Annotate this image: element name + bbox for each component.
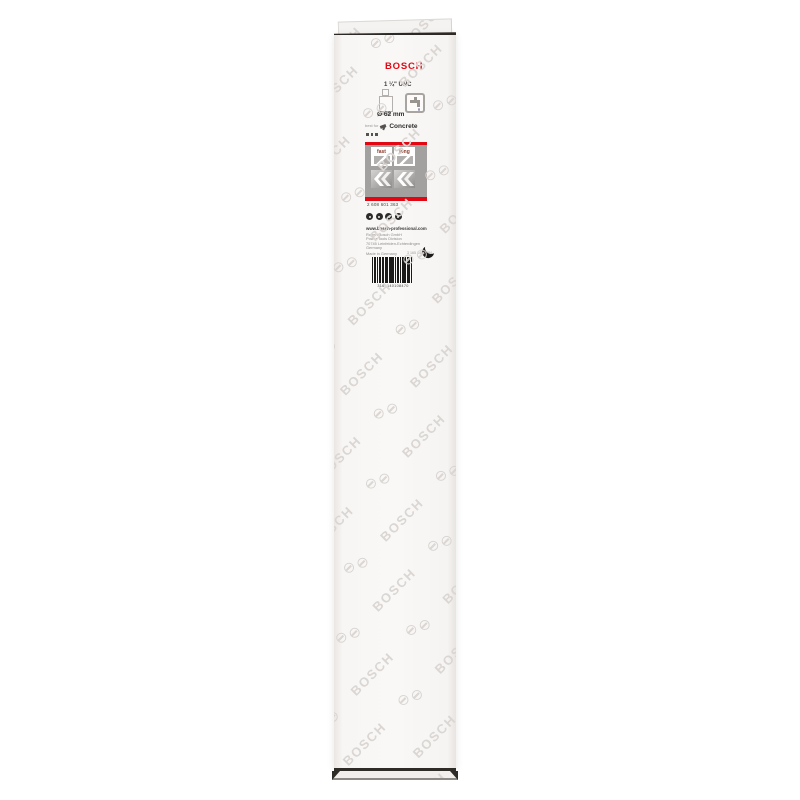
watermark-bosch-text: BOSCH	[399, 410, 448, 459]
watermark-bosch-text: BOSCH	[334, 502, 356, 551]
watermark-bosch-text: BOSCH	[431, 626, 456, 675]
watermark-bosch-text: BOSCH	[347, 648, 396, 697]
watermark-bosch-text: BOSCH	[339, 718, 388, 767]
bosch-armature-logo-watermark	[334, 705, 340, 733]
watermark-row: BOSCHBOSCHBOSCHBOSCH	[332, 771, 458, 780]
bosch-armature-logo-watermark	[401, 243, 429, 271]
watermark-bosch-text: BOSCH	[332, 776, 379, 780]
bosch-armature-logo-watermark	[334, 251, 359, 279]
watermark-bosch-text: BOSCH	[377, 494, 426, 543]
bosch-armature-logo-watermark	[342, 551, 370, 579]
bosch-armature-logo-watermark	[334, 335, 337, 363]
product-photo: BOSCHBOSCHBOSCHBOSCHBOSCHBOSCHBOSCHBOSCH…	[0, 0, 800, 800]
bosch-armature-logo-watermark	[334, 621, 362, 649]
bosch-armature-logo-watermark	[369, 35, 397, 54]
watermark-bosch-text: BOSCH	[334, 432, 364, 481]
watermark-bosch-text: BOSCH	[334, 62, 361, 111]
watermark-bosch-text: BOSCH	[344, 278, 393, 327]
bosch-core-bit-box: BOSCHBOSCHBOSCHBOSCHBOSCHBOSCHBOSCHBOSCH…	[330, 18, 458, 782]
watermark-bosch-text: BOSCH	[407, 340, 456, 389]
watermark-bosch-text: BOSCH	[334, 132, 353, 181]
box-front-face: BOSCH 1 ¼" UNC Ø 62 mm best for Concrete	[334, 35, 456, 770]
bosch-armature-logo-watermark	[434, 459, 456, 487]
bosch-armature-logo-watermark	[371, 397, 399, 425]
watermark-bosch-text: BOSCH	[409, 711, 456, 760]
box-bottom-flap: BOSCHBOSCHBOSCHBOSCHBOSCHBOSCHBOSCHBOSCH…	[332, 771, 458, 780]
watermark-bosch-text: BOSCH	[336, 348, 385, 397]
watermark-bosch-text: BOSCH	[366, 194, 415, 243]
watermark-bosch-text: BOSCH	[374, 124, 423, 173]
watermark-bosch-text: BOSCH	[439, 556, 456, 605]
watermark-bosch-text: BOSCH	[369, 564, 418, 613]
watermark-bosch-text: BOSCH	[436, 186, 456, 235]
watermark-bosch-text: BOSCH	[428, 256, 456, 305]
bosch-armature-logo-watermark	[361, 97, 389, 125]
bosch-armature-logo-watermark	[404, 613, 432, 641]
bosch-armature-logo-watermark	[393, 313, 421, 341]
bosch-armature-logo-watermark	[431, 89, 456, 117]
watermark-bosch-text: BOSCH	[400, 771, 449, 780]
bosch-armature-logo-watermark	[339, 181, 367, 209]
bosch-armature-logo-watermark	[426, 529, 454, 557]
bosch-armature-logo-watermark	[364, 467, 392, 495]
bosch-armature-logo-watermark	[396, 683, 424, 711]
watermark-bosch-text: BOSCH	[396, 40, 445, 89]
bosch-armature-logo-watermark	[423, 159, 451, 187]
